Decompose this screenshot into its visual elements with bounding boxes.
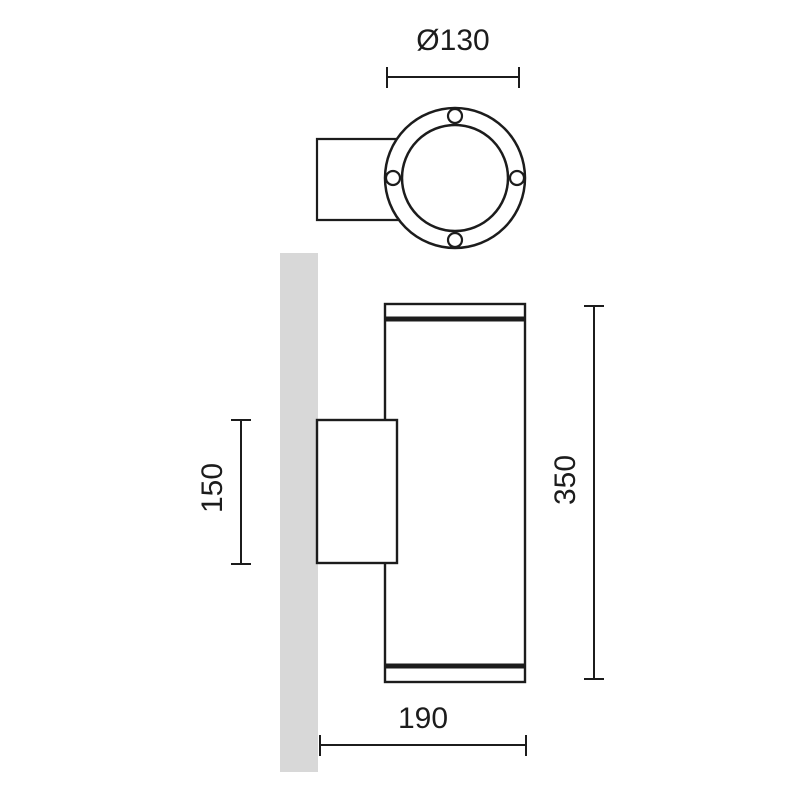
dimension-body-height bbox=[584, 306, 604, 679]
dimension-label-body-depth: 190 bbox=[398, 703, 448, 735]
drawing-canvas: Ø130 150 350 190 bbox=[0, 0, 800, 800]
dimension-body-depth bbox=[320, 735, 526, 756]
front-view-mounting-bracket bbox=[317, 420, 397, 563]
top-view-screw-hole bbox=[510, 171, 524, 185]
technical-drawing bbox=[0, 0, 800, 800]
top-view-screw-hole bbox=[448, 233, 462, 247]
top-view-screw-hole bbox=[448, 109, 462, 123]
dimension-bracket-height bbox=[231, 420, 251, 564]
top-view-screw-hole bbox=[386, 171, 400, 185]
dimension-label-bracket-height: 150 bbox=[197, 446, 229, 530]
dimension-label-flange-diameter: Ø130 bbox=[416, 25, 489, 57]
front-view-body bbox=[385, 304, 525, 682]
dimension-label-body-height: 350 bbox=[550, 438, 582, 522]
top-view-flange-outer bbox=[385, 108, 525, 248]
wall-surface bbox=[280, 253, 318, 772]
dimension-flange-diameter bbox=[387, 67, 519, 88]
